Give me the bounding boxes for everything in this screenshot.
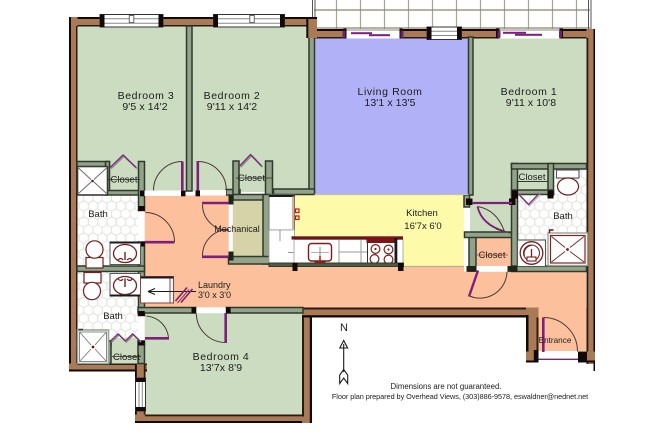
svg-text:N: N xyxy=(340,322,348,334)
svg-text:13'1 x 13'5: 13'1 x 13'5 xyxy=(364,97,415,109)
svg-text:Bath: Bath xyxy=(103,311,123,322)
svg-text:Laundry: Laundry xyxy=(198,280,231,290)
svg-text:9'11 x 10'8: 9'11 x 10'8 xyxy=(506,97,557,109)
svg-text:9'5 x 14'2: 9'5 x 14'2 xyxy=(122,101,167,113)
svg-text:Bath: Bath xyxy=(88,209,108,220)
svg-text:Closet: Closet xyxy=(238,173,265,184)
svg-text:Closet: Closet xyxy=(113,352,140,363)
svg-text:9'11 x 14'2: 9'11 x 14'2 xyxy=(207,101,258,113)
svg-text:Bath: Bath xyxy=(553,211,573,222)
svg-text:Kitchen: Kitchen xyxy=(406,208,438,219)
svg-text:Entrance: Entrance xyxy=(539,336,572,345)
svg-text:3'0 x 3'0: 3'0 x 3'0 xyxy=(198,290,231,300)
svg-text:Mechanical: Mechanical xyxy=(214,224,260,234)
svg-text:13'7x 8'9: 13'7x 8'9 xyxy=(200,362,242,374)
svg-text:Dimensions are not guaranteed.: Dimensions are not guaranteed. xyxy=(391,382,502,391)
svg-text:16'7x 6'0: 16'7x 6'0 xyxy=(404,221,441,232)
svg-text:Floor plan prepared by Overhea: Floor plan prepared by Overhead Views, (… xyxy=(332,392,588,401)
svg-text:Closet: Closet xyxy=(111,175,138,186)
svg-text:Closet: Closet xyxy=(479,250,506,261)
